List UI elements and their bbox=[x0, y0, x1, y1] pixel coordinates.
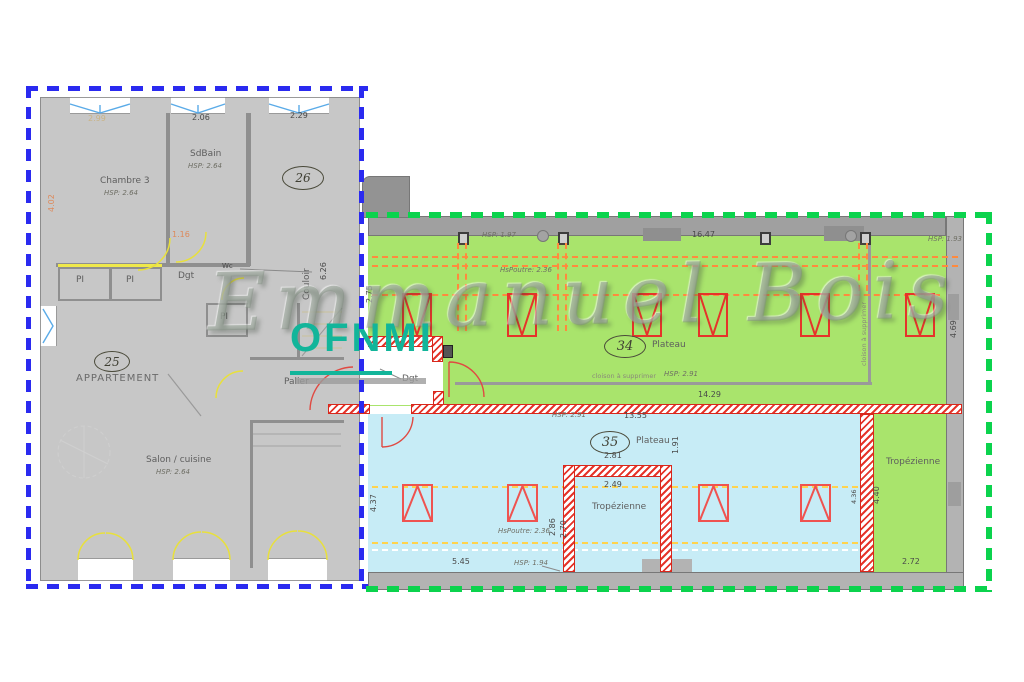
apartment-boundary-left bbox=[26, 86, 31, 589]
window-opening bbox=[268, 558, 327, 581]
dim-label: 4.37 bbox=[370, 494, 378, 512]
dim-label: 4.40 bbox=[873, 486, 881, 504]
wall-block bbox=[824, 226, 864, 241]
trop-wall-right bbox=[660, 465, 672, 572]
column-marker bbox=[800, 484, 831, 522]
window-opening bbox=[70, 97, 130, 114]
column-marker bbox=[402, 484, 433, 522]
room-label-salon: Salon / cuisine bbox=[146, 456, 211, 465]
dim-label: 2.06 bbox=[192, 114, 210, 122]
dim-label: 14.29 bbox=[698, 391, 721, 399]
column-marker bbox=[698, 484, 729, 522]
steel-post bbox=[760, 232, 771, 245]
plateau-boundary-top bbox=[366, 212, 992, 218]
red-wall-separator bbox=[411, 404, 962, 414]
unit-label: APPARTEMENT bbox=[76, 374, 159, 384]
room-label-dgt: Dgt bbox=[178, 272, 194, 281]
wall-bump bbox=[845, 230, 857, 242]
dim-label: 4.36 bbox=[851, 490, 858, 504]
beam-label: HsPoutre: 2.36 bbox=[498, 528, 550, 535]
axis-yellow bbox=[372, 542, 858, 544]
hsp-label: HSP: 2.64 bbox=[156, 469, 190, 476]
plateau-label: Plateau bbox=[652, 341, 686, 350]
wall bbox=[246, 113, 251, 266]
hsp-label: HSP: 1.94 bbox=[514, 560, 548, 567]
cloison-line bbox=[455, 382, 872, 385]
hsp-label: HSP: 2.91 bbox=[664, 371, 698, 378]
hsp-label: HSP: 2.64 bbox=[104, 190, 138, 197]
dim-label: 2.99 bbox=[88, 115, 106, 123]
closet-accent bbox=[58, 264, 162, 267]
dim-label: 5.45 bbox=[452, 558, 470, 566]
stairwell bbox=[250, 420, 344, 568]
dim-label: 1.16 bbox=[172, 231, 190, 239]
dim-label: 2.81 bbox=[604, 452, 622, 460]
hsp-label: HSP: 2.91 bbox=[552, 412, 586, 419]
unit-number-25: 25 bbox=[94, 351, 130, 372]
dim-label: 2.29 bbox=[290, 112, 308, 120]
window-opening bbox=[173, 558, 230, 581]
cloison-label: cloison à supprimer bbox=[592, 373, 656, 380]
room-label-sdbain: SdBain bbox=[190, 150, 221, 159]
plateau-label: Plateau bbox=[636, 437, 670, 446]
brand-underline-teal bbox=[290, 371, 392, 375]
room-label-chambre3: Chambre 3 bbox=[100, 177, 150, 186]
apartment-boundary-top bbox=[26, 86, 368, 91]
wall-bump bbox=[537, 230, 549, 242]
steel-post-dark bbox=[443, 345, 453, 358]
window-opening bbox=[40, 306, 57, 346]
hsp-label: HSP: 2.64 bbox=[188, 163, 222, 170]
apartment-boundary-right bbox=[359, 86, 364, 589]
red-post bbox=[433, 391, 444, 405]
dim-label: 2.72 bbox=[902, 558, 920, 566]
column-marker bbox=[507, 484, 538, 522]
wall-block bbox=[643, 228, 681, 241]
radiator bbox=[948, 482, 961, 506]
tropezienne-room-zone bbox=[874, 414, 946, 572]
dim-label: 4.02 bbox=[48, 194, 56, 212]
dim-label: 1.91 bbox=[672, 436, 680, 454]
hsp-label: HSP: 1.93 bbox=[928, 236, 962, 243]
room-label-tropezienne2: Tropézienne bbox=[886, 458, 940, 467]
dim-label: 2.70 bbox=[560, 520, 568, 538]
trop-wall-top bbox=[563, 465, 672, 477]
window-opening bbox=[78, 558, 133, 581]
room-label-tropezienne: Tropézienne bbox=[592, 503, 646, 512]
axis-white bbox=[372, 549, 858, 551]
dim-label: 13.55 bbox=[624, 412, 647, 420]
plateau-boundary-right bbox=[986, 212, 992, 592]
hsp-label: HSP: 1.97 bbox=[482, 232, 516, 239]
wall bbox=[166, 113, 170, 266]
closet-label: PI bbox=[126, 276, 134, 285]
trop-wall-left bbox=[563, 465, 575, 572]
dim-label: 16.47 bbox=[692, 231, 715, 239]
window-opening bbox=[171, 97, 225, 114]
floor-plan: Chambre 3 HSP: 2.64 SdBain HSP: 2.64 PI … bbox=[0, 0, 1024, 682]
apartment-boundary-bottom bbox=[26, 584, 368, 589]
dim-label: 2.86 bbox=[549, 518, 557, 536]
closet-label: PI bbox=[76, 276, 84, 285]
plateau-boundary-bottom bbox=[366, 586, 992, 592]
dim-label: 2.49 bbox=[604, 481, 622, 489]
unit-number-26: 26 bbox=[282, 166, 324, 190]
wall bbox=[109, 267, 112, 301]
